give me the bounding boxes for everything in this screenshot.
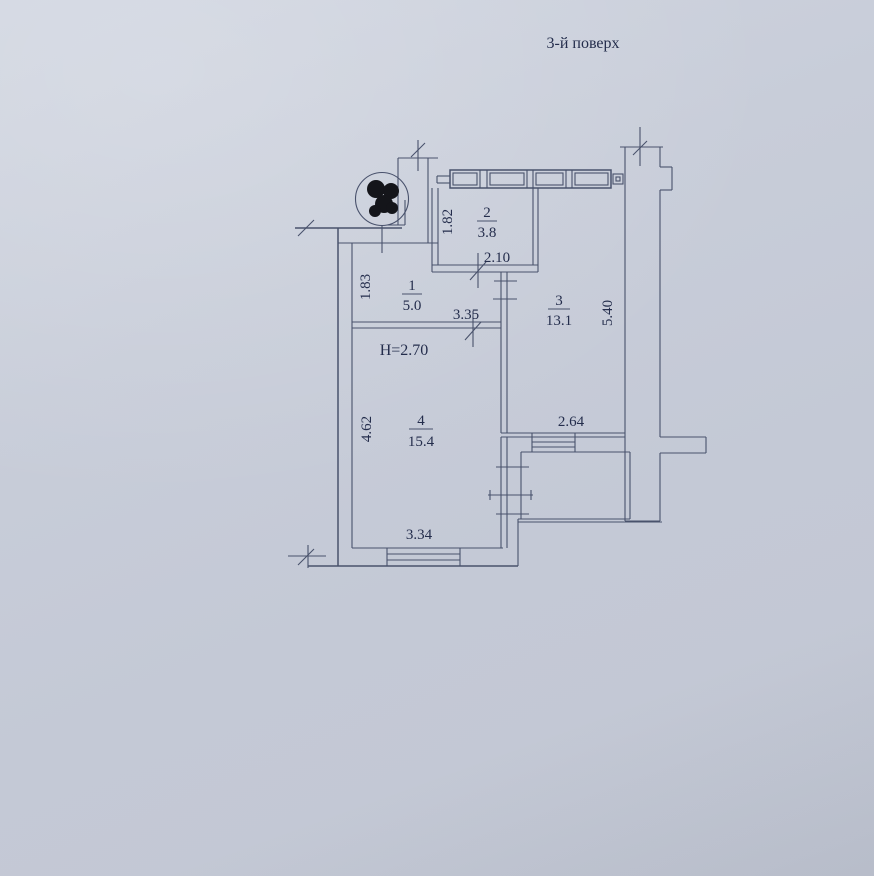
dim-room4-width: 3.34 <box>406 527 433 543</box>
dim-room3-width: 2.64 <box>558 414 585 430</box>
dim-room3-depth: 5.40 <box>600 300 616 326</box>
dim-room2-depth: 1.82 <box>440 209 456 235</box>
riser-symbol <box>356 173 409 254</box>
axis-ticks <box>288 127 647 568</box>
labels: 3-й поверх 1 5.0 2 3.8 3 13.1 4 15.4 2.1… <box>358 35 620 543</box>
floor-plan-drawing: 3-й поверх 1 5.0 2 3.8 3 13.1 4 15.4 2.1… <box>0 0 874 876</box>
floor-title: 3-й поверх <box>546 35 619 52</box>
room1-area: 5.0 <box>403 298 422 314</box>
room3-bottom-wall <box>501 433 625 452</box>
dim-room1-depth: 1.83 <box>358 274 374 300</box>
top-window-band <box>437 170 623 188</box>
room1-number: 1 <box>408 278 416 294</box>
room2-number: 2 <box>483 205 491 221</box>
room3-area: 13.1 <box>546 313 572 329</box>
room2-area: 3.8 <box>478 225 497 241</box>
balcony-wall <box>501 437 518 566</box>
dim-ceiling-height: H=2.70 <box>380 342 429 359</box>
exterior-walls <box>295 228 518 566</box>
dim-room2-width: 2.10 <box>484 250 510 266</box>
floor-plan-photo: 3-й поверх 1 5.0 2 3.8 3 13.1 4 15.4 2.1… <box>0 0 874 876</box>
right-core-wall <box>620 147 706 521</box>
duct-shaft <box>387 158 438 243</box>
room4-number: 4 <box>417 413 425 429</box>
dim-room1-width: 3.35 <box>453 307 479 323</box>
balcony-outline <box>518 452 662 522</box>
dim-room4-depth: 4.62 <box>359 416 375 442</box>
interior-partitions <box>352 272 507 433</box>
bottom-window <box>387 548 460 566</box>
room3-number: 3 <box>555 293 563 309</box>
room4-area: 15.4 <box>408 434 435 450</box>
